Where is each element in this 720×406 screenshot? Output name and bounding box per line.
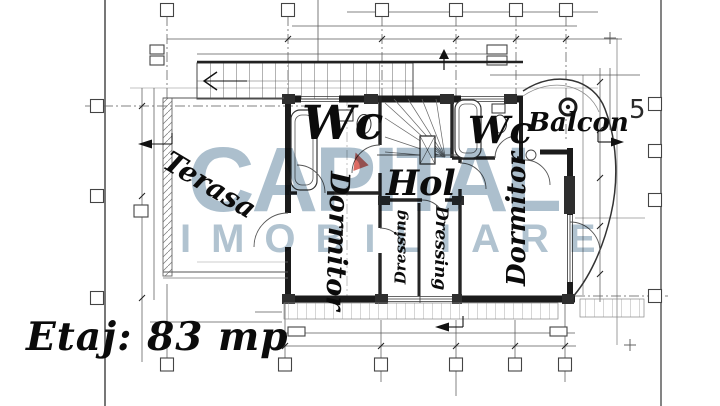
room-label-wc-right: Wc — [468, 112, 532, 149]
room-label-wc-left: Wc — [302, 100, 383, 147]
room-label-balcon: Balcon — [528, 110, 629, 136]
room-label-dressing-right: Dressing — [431, 206, 449, 291]
exterior-stairs — [197, 49, 523, 99]
room-label-dormitor-right: Dormitor — [504, 152, 530, 286]
floor-plan-page: CAPITAL IMOBILIARE Terasa Wc Wc Balcon H… — [0, 0, 720, 406]
grid-axis-number: 5 — [629, 97, 646, 123]
room-label-hol: Hol — [386, 166, 456, 201]
room-label-dormitor-left: Dormitor — [321, 171, 353, 311]
floor-area-label: Etaj: 83 mp — [26, 318, 288, 357]
room-label-dressing-left: Dressing — [394, 210, 409, 284]
